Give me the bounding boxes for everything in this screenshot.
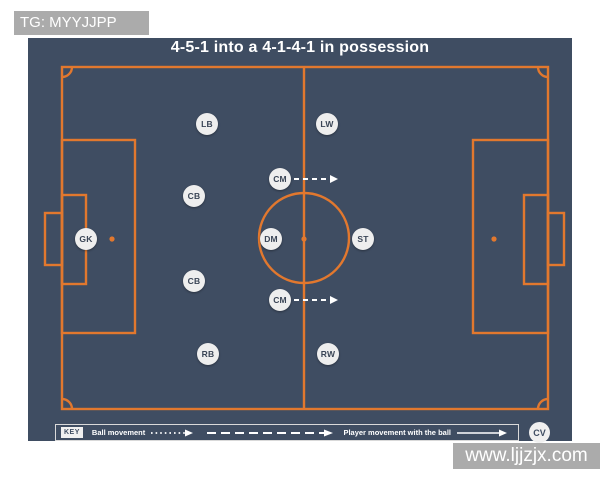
board-title: 4-5-1 into a 4-1-4-1 in possession xyxy=(28,39,572,57)
player-marker-rb[interactable]: RB xyxy=(197,343,219,365)
solid-arrow-icon xyxy=(455,429,509,437)
cv-badge: CV xyxy=(529,422,550,443)
key-player-movement-group: Player movement with the ball xyxy=(343,428,513,437)
key-tag: KEY xyxy=(61,427,83,438)
top-watermark: TG: MYYJJPP xyxy=(14,11,149,35)
player-marker-rw[interactable]: RW xyxy=(317,343,339,365)
dashed-arrow-icon xyxy=(205,429,337,437)
dotted-arrow-icon xyxy=(149,429,195,437)
player-marker-st[interactable]: ST xyxy=(352,228,374,250)
key-dashed-group xyxy=(201,429,341,437)
player-marker-cb[interactable]: CB xyxy=(183,270,205,292)
player-marker-cb[interactable]: CB xyxy=(183,185,205,207)
player-movement-label: Player movement with the ball xyxy=(343,428,451,437)
key-ball-movement-group: KEY Ball movement xyxy=(61,427,199,438)
player-marker-cm[interactable]: CM xyxy=(269,168,291,190)
ball-movement-label: Ball movement xyxy=(92,428,145,437)
player-marker-dm[interactable]: DM xyxy=(260,228,282,250)
board-canvas xyxy=(28,38,572,441)
key-legend: KEY Ball movement Player movement with t… xyxy=(55,424,519,441)
player-marker-lw[interactable]: LW xyxy=(316,113,338,135)
bottom-watermark: www.ljjzjx.com xyxy=(453,443,600,469)
player-marker-lb[interactable]: LB xyxy=(196,113,218,135)
tactics-board-page: GKLBCBCBRBCMDMCMLWSTRW 4-5-1 into a 4-1-… xyxy=(0,0,600,480)
player-marker-gk[interactable]: GK xyxy=(75,228,97,250)
player-marker-cm[interactable]: CM xyxy=(269,289,291,311)
